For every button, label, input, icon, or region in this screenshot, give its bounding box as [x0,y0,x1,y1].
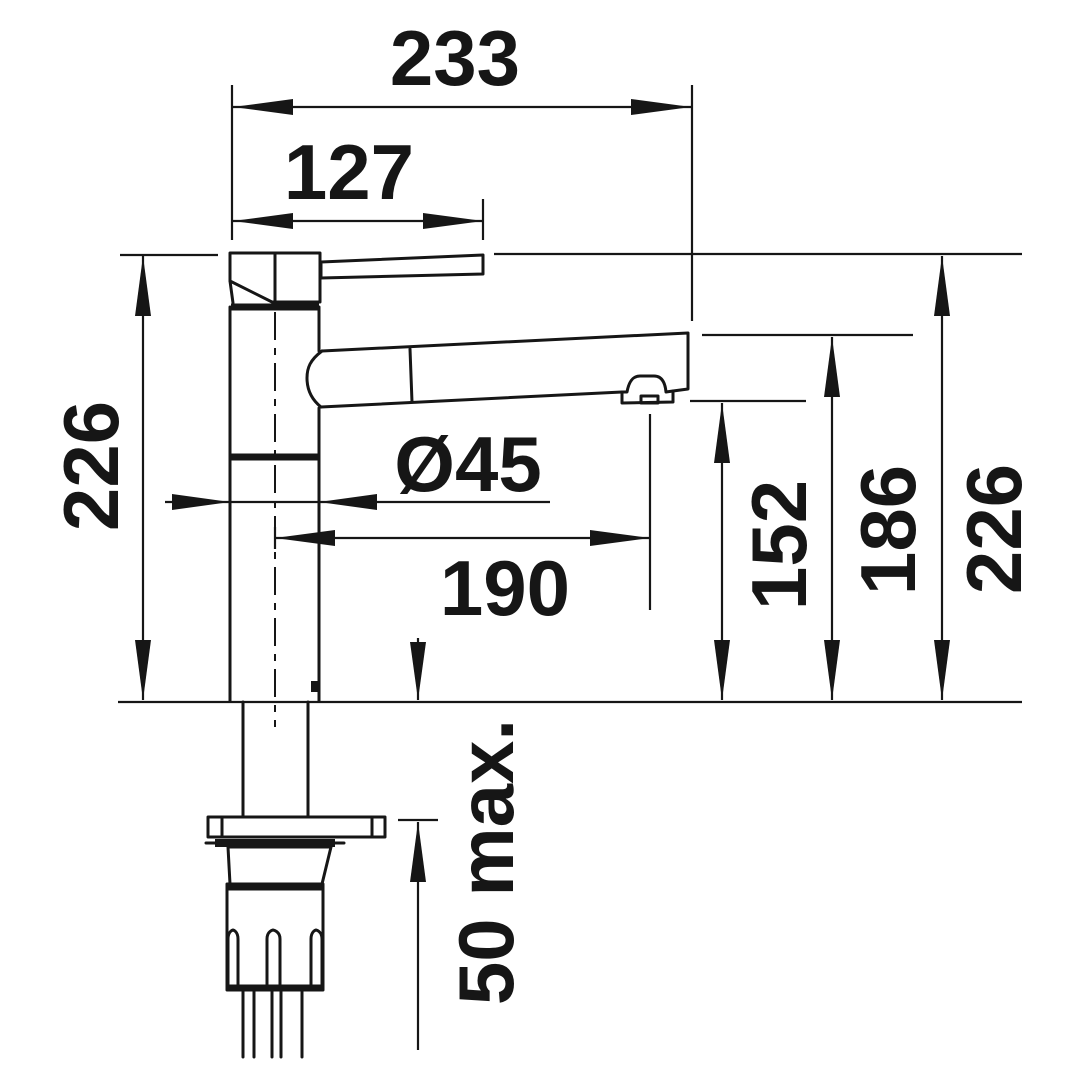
arrowhead-top [934,256,950,316]
dim-total-height-right-label: 226 [950,464,1038,594]
arrowhead-top [824,337,840,397]
arrowhead-right [590,530,650,546]
faucet-dimension-drawing: 233 127 226 Ø45 190 152 [0,0,1080,1080]
dim-overall-width-label: 233 [390,14,520,102]
dim-outlet-height-label: 152 [735,480,823,610]
body-clip-detail [311,681,319,692]
arrowhead-left [275,530,335,546]
hose-nipple-2 [267,930,280,985]
arrowhead-right [423,213,483,229]
dim-handle-width-label: 127 [284,128,414,216]
arrowhead-up [410,822,426,882]
below-counter-assembly [206,702,385,1057]
faucet-lever [321,255,483,278]
dimension-base-diameter: Ø45 [165,420,550,510]
dim-spout-reach-label: 190 [440,544,570,632]
arrowhead-bottom [135,640,151,700]
spout-bottom-edge [321,392,622,407]
arrowhead-down [410,642,426,700]
dim-total-height-left-label: 226 [47,401,135,531]
hose-nipple-3 [311,930,322,985]
spout-arm [322,333,688,391]
dimension-countertop-max: 50 max. [398,638,530,1050]
arrowhead-right [631,99,691,115]
dim-base-diameter-label: Ø45 [394,420,541,508]
dimension-outlet-height: 152 [690,401,823,700]
spout-seam [410,349,412,402]
hose-nipple-1 [228,930,238,985]
dimension-handle-width: 127 [233,128,483,240]
dimension-total-height-right: 226 [494,254,1038,700]
faucet-cap-sliver [230,281,233,303]
tapered-collar [228,847,331,884]
mounting-flange [208,817,385,837]
arrowhead-top [714,403,730,463]
arrowhead-top [135,256,151,316]
connection-block [227,884,323,990]
arrowhead-bottom [714,640,730,700]
aerator-notch [641,396,658,403]
arrowhead-left [233,99,293,115]
arrowhead-right [319,494,377,510]
dim-spout-height-label: 186 [844,465,932,595]
arrowhead-bottom [824,640,840,700]
spray-head [622,376,673,403]
dim-countertop-max-label: 50 max. [442,719,530,1005]
dimension-total-height-left: 226 [47,255,218,700]
spout-bulge [307,351,322,407]
drawing-canvas: 233 127 226 Ø45 190 152 [0,0,1080,1080]
arrowhead-bottom [934,640,950,700]
arrowhead-left [172,494,230,510]
